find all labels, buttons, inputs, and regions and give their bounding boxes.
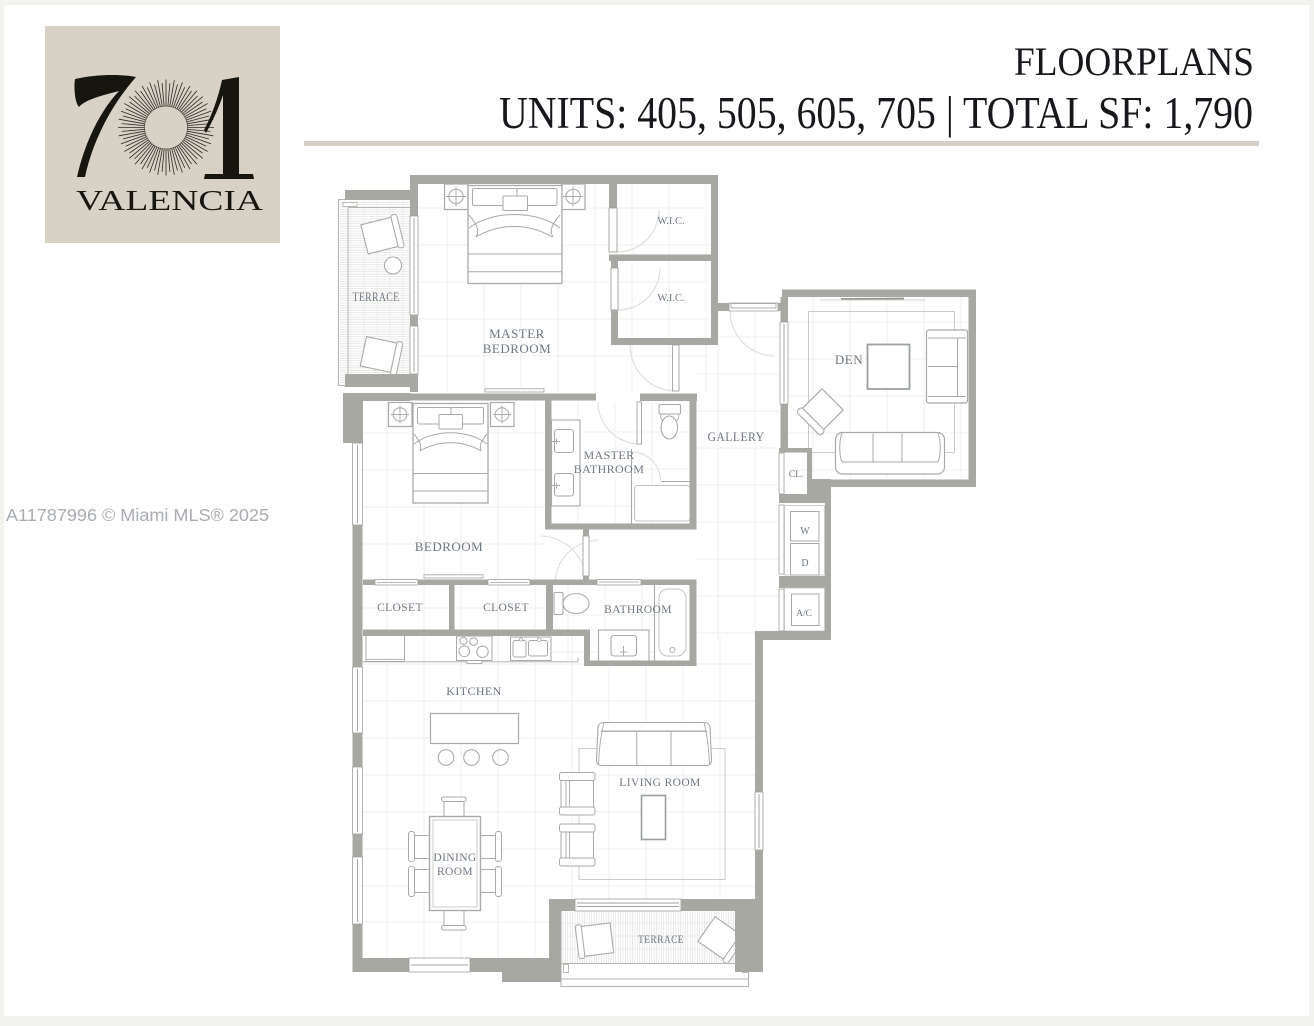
svg-text:BEDROOM: BEDROOM bbox=[483, 341, 552, 356]
svg-text:BEDROOM: BEDROOM bbox=[415, 539, 484, 554]
svg-text:UNITS: 405, 505, 605, 705 | TO: UNITS: 405, 505, 605, 705 | TOTAL SF: 1,… bbox=[499, 88, 1253, 138]
svg-text:A11787996 © Miami MLS® 2025: A11787996 © Miami MLS® 2025 bbox=[6, 505, 269, 525]
svg-text:GALLERY: GALLERY bbox=[708, 430, 765, 444]
svg-text:TERRACE: TERRACE bbox=[353, 290, 400, 304]
svg-text:W.I.C.: W.I.C. bbox=[657, 216, 684, 227]
svg-text:DINING: DINING bbox=[433, 852, 476, 864]
svg-text:VALENCIA: VALENCIA bbox=[76, 185, 263, 217]
svg-text:W: W bbox=[800, 526, 810, 537]
svg-text:CLOSET: CLOSET bbox=[483, 602, 529, 614]
svg-text:A/C: A/C bbox=[796, 609, 812, 619]
svg-text:W.I.C.: W.I.C. bbox=[657, 293, 684, 304]
svg-text:BATHROOM: BATHROOM bbox=[574, 462, 645, 476]
svg-text:D: D bbox=[801, 558, 808, 569]
svg-text:LIVING ROOM: LIVING ROOM bbox=[619, 777, 700, 789]
svg-text:KITCHEN: KITCHEN bbox=[446, 684, 501, 698]
svg-text:DEN: DEN bbox=[835, 352, 863, 367]
svg-text:MASTER: MASTER bbox=[583, 448, 634, 462]
svg-text:CLOSET: CLOSET bbox=[377, 602, 423, 614]
svg-text:ROOM: ROOM bbox=[437, 866, 473, 878]
svg-text:BATHROOM: BATHROOM bbox=[604, 604, 672, 616]
svg-text:FLOORPLANS: FLOORPLANS bbox=[1014, 39, 1254, 84]
svg-text:MASTER: MASTER bbox=[489, 326, 545, 341]
svg-text:CL.: CL. bbox=[789, 470, 804, 480]
svg-text:TERRACE: TERRACE bbox=[638, 934, 684, 946]
